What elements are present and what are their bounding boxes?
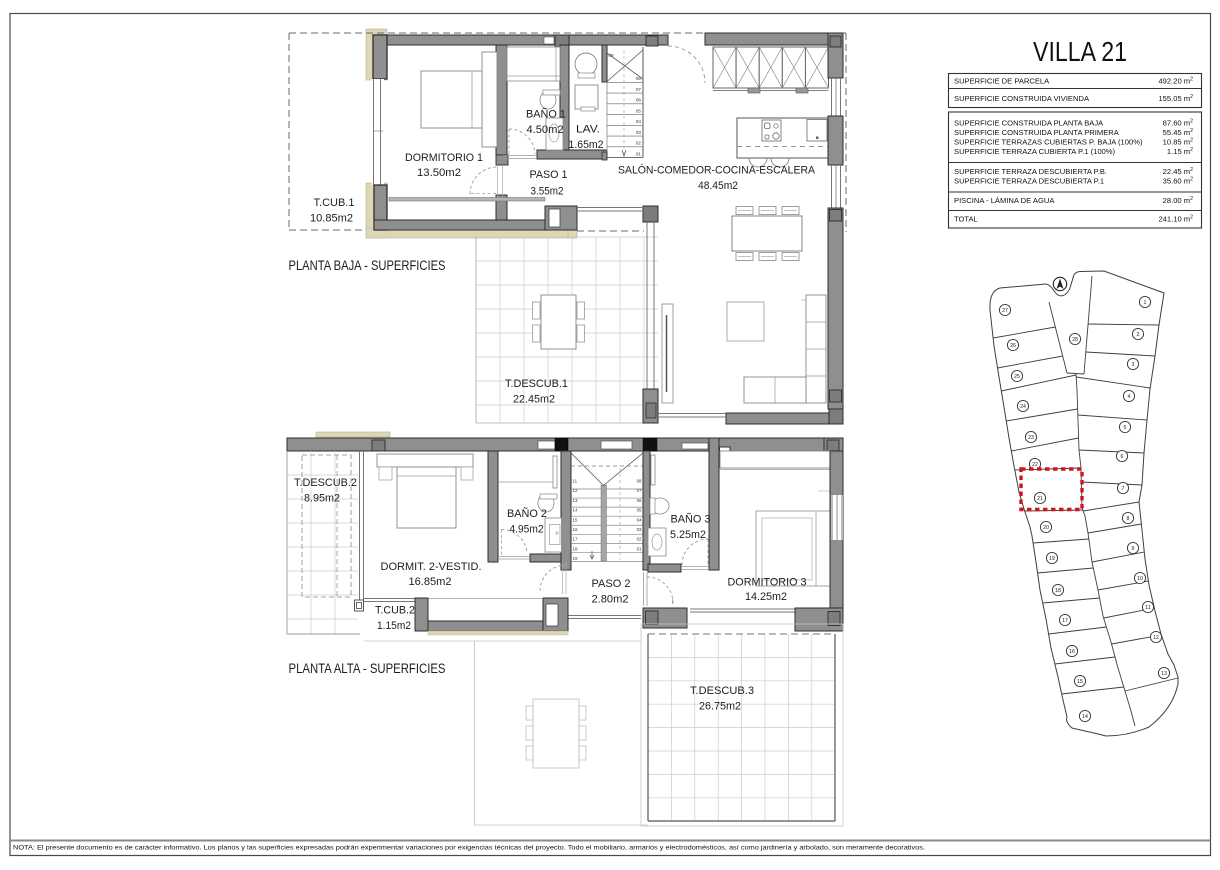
svg-text:8: 8	[1127, 516, 1130, 522]
svg-text:11: 11	[573, 479, 578, 484]
svg-text:1.15m2: 1.15m2	[377, 620, 411, 632]
svg-text:87.60 m2: 87.60 m2	[1163, 119, 1193, 128]
svg-text:SUPERFICIE DE PARCELA: SUPERFICIE DE PARCELA	[954, 77, 1050, 86]
svg-text:17: 17	[573, 537, 578, 542]
svg-text:15: 15	[573, 517, 578, 522]
svg-text:19: 19	[1049, 556, 1055, 562]
svg-text:12: 12	[1153, 635, 1159, 641]
svg-text:T.DESCUB.3: T.DESCUB.3	[690, 685, 754, 697]
svg-text:26: 26	[1010, 343, 1016, 349]
svg-text:SUPERFICIE TERRAZAS CUBIERTAS: SUPERFICIE TERRAZAS CUBIERTAS P. BAJA (1…	[954, 138, 1143, 147]
svg-text:2: 2	[1137, 332, 1140, 338]
svg-text:21: 21	[1037, 496, 1043, 502]
svg-text:PASO 2: PASO 2	[592, 578, 631, 590]
svg-text:7: 7	[1122, 486, 1125, 492]
svg-text:T.CUB.2: T.CUB.2	[375, 605, 415, 617]
svg-text:1: 1	[1144, 300, 1147, 306]
svg-text:01: 01	[637, 546, 642, 551]
svg-text:28: 28	[1072, 337, 1078, 343]
svg-text:26.75m2: 26.75m2	[699, 701, 741, 713]
svg-text:4.95m2: 4.95m2	[510, 524, 544, 536]
svg-text:04: 04	[636, 119, 642, 124]
svg-text:SUPERFICIE CONSTRUIDA PLANTA P: SUPERFICIE CONSTRUIDA PLANTA PRIMERA	[954, 128, 1120, 137]
svg-text:24: 24	[1020, 404, 1026, 410]
svg-text:05: 05	[636, 108, 642, 113]
svg-text:T.CUB.1: T.CUB.1	[314, 197, 355, 209]
svg-text:T.DESCUB.1: T.DESCUB.1	[505, 378, 568, 390]
svg-text:155.05 m2: 155.05 m2	[1158, 94, 1193, 103]
svg-text:19: 19	[573, 556, 578, 561]
svg-text:DORMIT. 2-VESTID.: DORMIT. 2-VESTID.	[381, 561, 482, 573]
svg-text:03: 03	[637, 527, 642, 532]
svg-text:241.10 m2: 241.10 m2	[1158, 215, 1193, 224]
svg-text:5.25m2: 5.25m2	[670, 529, 706, 541]
svg-text:13: 13	[573, 498, 578, 503]
svg-text:55.45 m2: 55.45 m2	[1163, 128, 1193, 137]
svg-text:NOTA: El presente documento es: NOTA: El presente documento es de caráct…	[13, 845, 925, 852]
svg-text:02: 02	[636, 141, 642, 146]
svg-text:1.15 m2: 1.15 m2	[1167, 147, 1193, 156]
svg-text:T.DESCUB.2: T.DESCUB.2	[294, 477, 357, 489]
svg-text:VILLA 21: VILLA 21	[1033, 36, 1127, 67]
svg-text:492.20 m2: 492.20 m2	[1158, 77, 1193, 86]
svg-text:3: 3	[1132, 362, 1135, 368]
svg-text:22: 22	[1032, 462, 1038, 468]
svg-text:35.60 m2: 35.60 m2	[1163, 177, 1193, 186]
svg-text:01: 01	[636, 151, 642, 156]
svg-text:22.45 m2: 22.45 m2	[1163, 167, 1193, 176]
svg-text:06: 06	[637, 498, 642, 503]
svg-text:BAÑO 2: BAÑO 2	[507, 507, 547, 520]
svg-text:20: 20	[1043, 525, 1049, 531]
svg-text:13: 13	[1161, 671, 1167, 677]
svg-text:SUPERFICIE TERRAZA CUBIERTA P.: SUPERFICIE TERRAZA CUBIERTA P.1 (100%)	[954, 147, 1116, 156]
svg-text:4: 4	[1128, 394, 1131, 400]
svg-text:18: 18	[1055, 588, 1061, 594]
svg-text:08: 08	[637, 479, 642, 484]
svg-text:TOTAL: TOTAL	[954, 215, 978, 224]
svg-text:SUPERFICIE CONSTRUIDA VIVIENDA: SUPERFICIE CONSTRUIDA VIVIENDA	[954, 94, 1090, 103]
svg-text:SUPERFICIE CONSTRUIDA PLANTA B: SUPERFICIE CONSTRUIDA PLANTA BAJA	[954, 119, 1104, 128]
svg-text:48.45m2: 48.45m2	[698, 180, 738, 192]
svg-text:14: 14	[573, 508, 578, 513]
svg-text:22.45m2: 22.45m2	[513, 394, 555, 406]
svg-text:PASO 1: PASO 1	[530, 169, 568, 181]
svg-text:10: 10	[1137, 576, 1143, 582]
svg-text:12: 12	[573, 488, 578, 493]
svg-text:11: 11	[1145, 605, 1150, 611]
svg-text:BAÑO 3: BAÑO 3	[671, 513, 711, 526]
svg-text:DORMITORIO 3: DORMITORIO 3	[728, 577, 807, 589]
svg-text:25: 25	[1014, 374, 1020, 380]
svg-text:08: 08	[636, 76, 642, 81]
svg-text:17: 17	[1062, 618, 1068, 624]
svg-text:10.85 m2: 10.85 m2	[1163, 138, 1193, 147]
svg-text:13.50m2: 13.50m2	[417, 167, 461, 179]
svg-text:07: 07	[637, 488, 642, 493]
svg-text:5: 5	[1124, 425, 1127, 431]
svg-text:16: 16	[1069, 649, 1075, 655]
svg-text:07: 07	[636, 87, 642, 92]
svg-text:9: 9	[1132, 546, 1135, 552]
svg-text:04: 04	[637, 517, 642, 522]
svg-text:LAV.: LAV.	[576, 124, 600, 136]
svg-text:DORMITORIO 1: DORMITORIO 1	[405, 152, 483, 164]
svg-text:PLANTA ALTA - SUPERFICIES: PLANTA ALTA - SUPERFICIES	[289, 661, 446, 676]
svg-text:SUPERFICIE TERRAZA DESCUBIERTA: SUPERFICIE TERRAZA DESCUBIERTA P.B.	[954, 167, 1107, 176]
svg-text:02: 02	[637, 537, 642, 542]
svg-text:06: 06	[636, 98, 642, 103]
svg-text:18: 18	[573, 546, 578, 551]
svg-text:SALÓN-COMEDOR-COCINA-ESCALERA: SALÓN-COMEDOR-COCINA-ESCALERA	[618, 164, 816, 177]
svg-text:BAÑO 1: BAÑO 1	[526, 108, 566, 121]
svg-text:15: 15	[1077, 679, 1083, 685]
svg-text:PISCINA - LÁMINA DE AGUA: PISCINA - LÁMINA DE AGUA	[954, 196, 1055, 205]
svg-text:3.55m2: 3.55m2	[531, 186, 564, 198]
svg-text:14: 14	[1082, 714, 1088, 720]
svg-text:10.85m2: 10.85m2	[310, 213, 353, 225]
svg-text:6: 6	[1121, 454, 1124, 460]
svg-text:4.50m2: 4.50m2	[527, 124, 564, 136]
svg-text:14.25m2: 14.25m2	[745, 591, 787, 603]
svg-text:28.00 m2: 28.00 m2	[1163, 196, 1193, 205]
svg-text:16: 16	[573, 527, 578, 532]
svg-text:27: 27	[1002, 308, 1008, 314]
svg-text:SUPERFICIE TERRAZA DESCUBIERTA: SUPERFICIE TERRAZA DESCUBIERTA P.1	[954, 177, 1104, 186]
svg-text:8.95m2: 8.95m2	[304, 493, 340, 505]
svg-text:03: 03	[636, 130, 642, 135]
svg-text:23: 23	[1028, 435, 1034, 441]
svg-text:2.80m2: 2.80m2	[592, 594, 629, 606]
svg-text:1.65m2: 1.65m2	[569, 139, 604, 151]
svg-text:16.85m2: 16.85m2	[409, 576, 452, 588]
svg-text:05: 05	[637, 508, 642, 513]
svg-text:PLANTA BAJA - SUPERFICIES: PLANTA BAJA - SUPERFICIES	[289, 258, 446, 273]
